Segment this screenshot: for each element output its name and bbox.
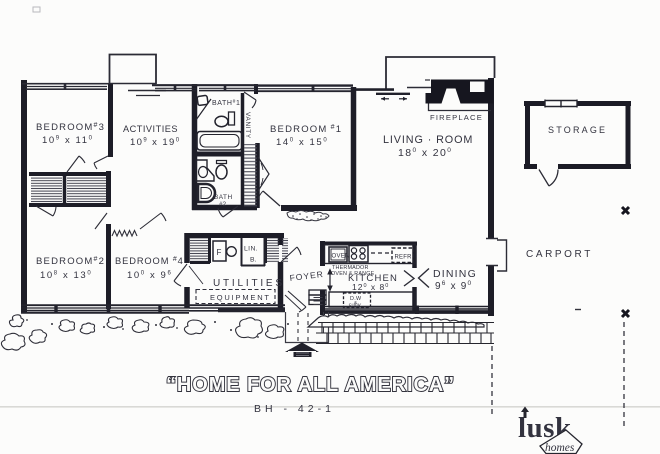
svg-text:homes: homes	[545, 442, 575, 454]
svg-text:STORAGE: STORAGE	[548, 125, 607, 135]
svg-text:B.: B.	[250, 257, 257, 264]
svg-text:180 x 200: 180 x 200	[398, 147, 452, 159]
svg-text:FIREPLACE: FIREPLACE	[430, 113, 483, 122]
svg-text:120 x 80: 120 x 80	[352, 282, 389, 292]
svg-text:“HOME FOR ALL AMERICA”: “HOME FOR ALL AMERICA”	[166, 374, 455, 396]
svg-text:EQUIPMENT: EQUIPMENT	[210, 293, 271, 302]
svg-text:BATH#1: BATH#1	[212, 99, 240, 107]
svg-text:REFR: REFR	[395, 255, 413, 261]
svg-text:140 x 150: 140 x 150	[276, 137, 328, 148]
svg-text:BH - 42-1: BH - 42-1	[254, 403, 335, 415]
svg-text:UTILITIES: UTILITIES	[213, 278, 285, 289]
svg-text:108 x 130: 108 x 130	[40, 270, 92, 281]
svg-text:109 x 190: 109 x 190	[130, 137, 180, 148]
svg-text:SINK: SINK	[349, 304, 363, 310]
svg-text:CARPORT: CARPORT	[526, 249, 593, 260]
svg-text:VANITY: VANITY	[244, 112, 251, 139]
svg-text:109 x 110: 109 x 110	[42, 135, 94, 146]
svg-text:LIVING · ROOM: LIVING · ROOM	[383, 134, 473, 146]
svg-text:ACTIVITIES: ACTIVITIES	[123, 124, 178, 134]
svg-text:LIN.: LIN.	[244, 246, 258, 253]
svg-text:100 x 96: 100 x 96	[127, 270, 172, 281]
svg-text:OVEN: OVEN	[332, 254, 350, 260]
svg-text:DINING: DINING	[433, 268, 477, 280]
svg-text:#2: #2	[219, 201, 227, 208]
svg-text:F: F	[217, 248, 222, 257]
svg-text:96 x 90: 96 x 90	[435, 280, 472, 292]
svg-text:BATH: BATH	[214, 194, 233, 201]
